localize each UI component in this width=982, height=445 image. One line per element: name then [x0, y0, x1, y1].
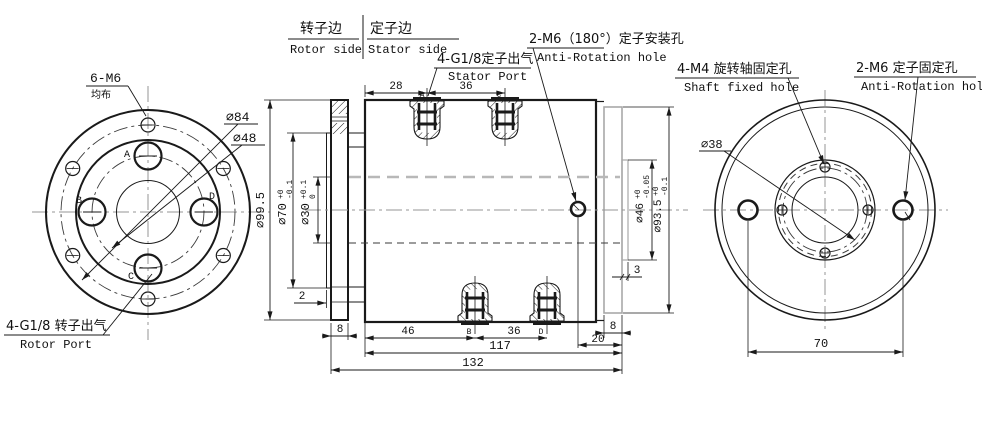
stator-fixed-label-en: Anti-Rotation hole: [861, 80, 982, 94]
dim-dia70-tol-upper: +0: [277, 189, 286, 199]
rotor-port-label-en: Rotor Port: [20, 338, 92, 352]
rotor-port-d: [530, 276, 564, 334]
dim-dia30-tol-upper: +0.1: [300, 180, 309, 199]
dia84-label: ⌀84: [226, 110, 250, 125]
section-port-letter-d: D: [539, 328, 544, 337]
dim-dia46: ⌀46: [635, 203, 647, 223]
dim-3: 3: [634, 265, 641, 277]
callout-6-m6: 6-M6 均布: [86, 71, 146, 116]
callout-dia84: ⌀84: [82, 110, 258, 280]
shaft-fixed-label-cn: 4-M4 旋转轴固定孔: [677, 62, 792, 77]
dim-hub-3: 3: [612, 262, 642, 281]
dim-dia30: ⌀30: [299, 203, 313, 225]
stator-mount-label-cn: 2-M6（180°）定子安装孔: [529, 32, 684, 47]
right-view: ⌀38 70 4-M4 旋转轴固定孔 Shaft fixed hole 2-M6…: [675, 61, 982, 357]
dim-70-span: 70: [814, 337, 828, 351]
callout-stator-port: 4-G1/8定子出气 Stator Port: [428, 51, 533, 96]
drawing-canvas: A B C D 6-M6 均布 ⌀84 ⌀48 4-G1/8 转子出气 Roto…: [0, 0, 982, 445]
dim-dia46-tol-upper: +0: [634, 189, 643, 199]
six-m6-label: 6-M6: [90, 71, 121, 86]
dim-46: 46: [401, 326, 414, 338]
section-port-letter-a: A: [420, 91, 425, 100]
rotor-port-b: [458, 276, 492, 334]
port-letter-d: D: [209, 192, 215, 203]
anti-rotation-hole: [571, 202, 585, 348]
stator-mount-label-en: Anti-Rotation hole: [537, 51, 667, 65]
stator-port-a: [410, 88, 444, 146]
dia48-label: ⌀48: [233, 131, 256, 146]
port-letter-b: B: [76, 196, 82, 207]
stator-fixed-label-cn: 2-M6 定子固定孔: [856, 61, 958, 76]
dim-dia30-tol-lower: 0: [309, 194, 318, 199]
left-view: A B C D 6-M6 均布 ⌀84 ⌀48 4-G1/8 转子出气 Roto…: [4, 71, 270, 352]
section-view: 转子边 Rotor side 定子边 Stator side 4-G1/8定子出…: [254, 15, 688, 374]
flange-hatch: [331, 101, 348, 302]
callout-dia48: ⌀48: [112, 131, 265, 248]
dim-8-left: 8: [337, 324, 344, 336]
callout-shaft-fixed: 4-M4 旋转轴固定孔 Shaft fixed hole: [675, 62, 824, 164]
section-port-letter-c: C: [497, 91, 502, 100]
dim-dia93-5-tol-upper: +0: [652, 186, 661, 196]
dim-132: 132: [462, 356, 484, 370]
stator-port-c: [488, 88, 522, 146]
dim-36-bottom: 36: [507, 326, 520, 338]
section-port-letter-b: B: [467, 328, 472, 337]
dim-flange-8: 8: [322, 323, 357, 340]
callout-stator-fixed: 2-M6 定子固定孔 Anti-Rotation hole: [854, 61, 982, 200]
dim-117: 117: [489, 339, 511, 353]
dim-dia93-5: ⌀93.5: [653, 199, 665, 232]
dim-dia46-tol-lower: -0.05: [643, 175, 652, 199]
stator-port-label-cn: 4-G1/8定子出气: [437, 51, 533, 67]
port-letter-c: C: [128, 272, 134, 283]
dim-dia99-5: ⌀99.5: [254, 192, 268, 228]
callout-stator-mount: 2-M6（180°）定子安装孔 Anti-Rotation hole: [527, 32, 684, 201]
dim-dia70-tol-lower: -0.1: [286, 180, 295, 199]
six-m6-note: 均布: [91, 89, 111, 101]
dim-8-right: 8: [610, 321, 617, 333]
rotor-port-label-cn: 4-G1/8 转子出气: [6, 318, 107, 334]
stator-side-cn: 定子边: [370, 21, 412, 37]
dim-plate-2: 2: [294, 290, 327, 308]
port-letter-a: A: [124, 150, 130, 161]
rotor-side-en: Rotor side: [290, 43, 362, 57]
dia38-label: ⌀38: [701, 138, 723, 152]
shaft-fixed-label-en: Shaft fixed hole: [684, 81, 799, 95]
dim-20: 20: [591, 334, 604, 346]
drawing-page: A B C D 6-M6 均布 ⌀84 ⌀48 4-G1/8 转子出气 Roto…: [0, 0, 982, 445]
flange-neck-lines: [348, 133, 365, 302]
rotor-side-cn: 转子边: [300, 21, 342, 37]
dim-36-top: 36: [459, 81, 472, 93]
dim-dia70: ⌀70: [276, 203, 290, 225]
dim-dia93-5-tol-lower: -0.1: [661, 177, 670, 196]
dim-28: 28: [389, 81, 402, 93]
side-header: 转子边 Rotor side 定子边 Stator side: [288, 15, 459, 59]
dim-2: 2: [299, 291, 306, 303]
stator-side-en: Stator side: [368, 43, 447, 57]
